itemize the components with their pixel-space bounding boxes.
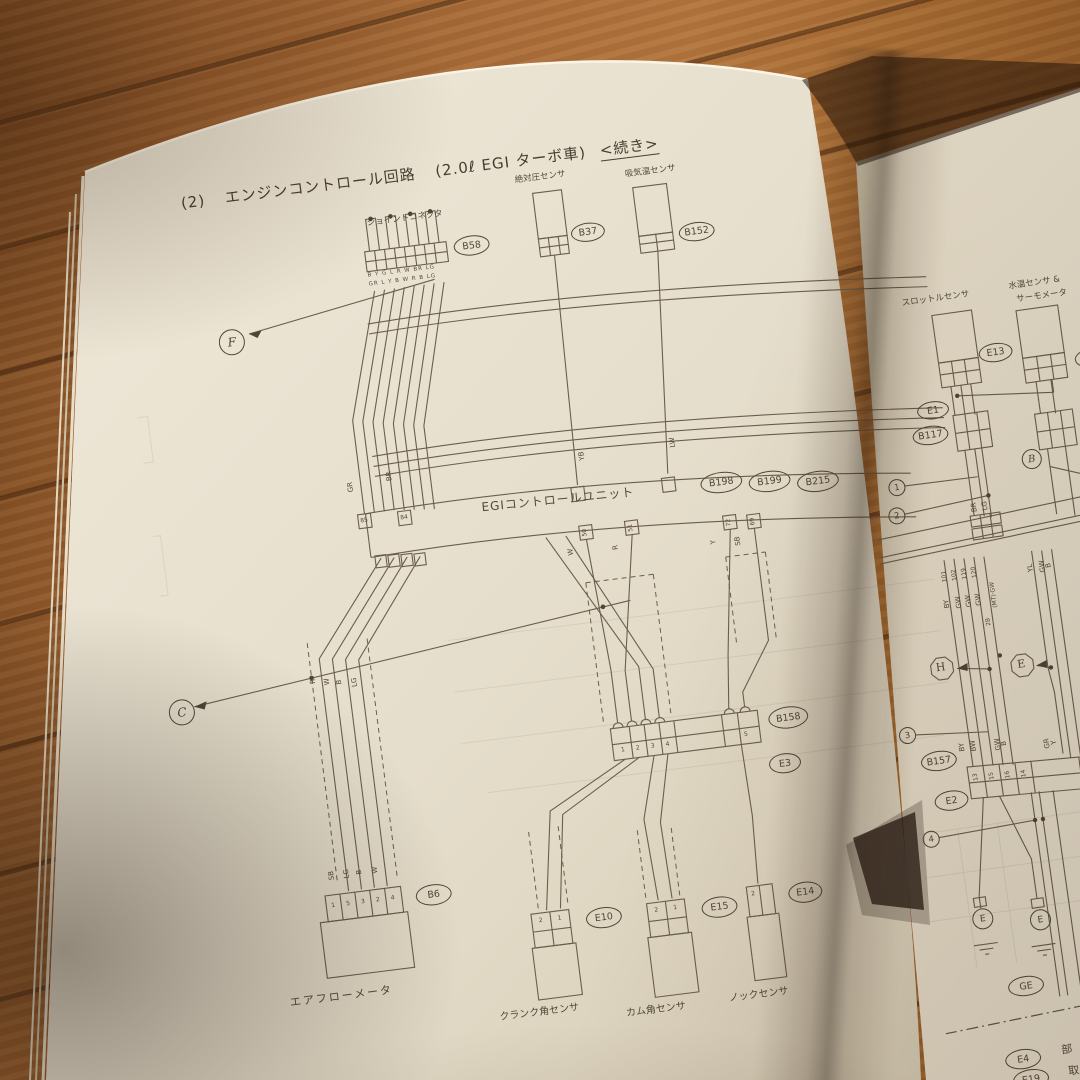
wire-af-2: LG — [343, 869, 351, 879]
ground-octagon-e: E — [1016, 658, 1026, 671]
wire-af-4: W — [372, 866, 380, 874]
wire-b: B — [1045, 562, 1053, 568]
bleedthrough-lines — [108, 272, 977, 1016]
wire-br: BR — [386, 471, 394, 482]
b158-pin-4: 4 — [665, 742, 670, 749]
wire-bundle-4: LG — [351, 677, 359, 687]
b6-pin-2: 5 — [346, 901, 351, 908]
pin-84: 84 — [400, 515, 408, 522]
arrowheads — [149, 330, 308, 710]
wire-bw: BW — [969, 739, 978, 751]
b6-pin-4: 2 — [376, 897, 381, 904]
wire-lw: LW — [669, 437, 678, 448]
pin-51: 51 — [628, 524, 635, 532]
wire-bundle-2: W — [324, 678, 332, 686]
wire-af-3: B — [356, 869, 364, 875]
b6-pin-1: 1 — [331, 903, 336, 910]
wire-bundle-3: B — [336, 679, 344, 685]
wire-2b: 2B — [985, 617, 992, 626]
b158-pin-2: 2 — [636, 745, 641, 752]
pin-85: 85 — [360, 518, 368, 525]
wire-gw3: GW — [974, 593, 983, 606]
pin-72: 72 — [726, 518, 733, 526]
wire-br-r: BR — [970, 502, 979, 513]
wire-r: R — [612, 544, 620, 550]
pin-50: 50 — [582, 528, 589, 536]
pin-15: 15 — [989, 772, 996, 780]
pin-13: 13 — [973, 773, 980, 781]
b158-pin-3: 3 — [651, 743, 656, 750]
partial-kanji-2: 取 — [1068, 1064, 1080, 1077]
b158-pin-5: 5 — [744, 732, 749, 739]
bleedthrough-lines-right — [918, 803, 1080, 974]
wire-gw1: GW — [955, 596, 964, 609]
e15-pin-a: 2 — [654, 907, 659, 914]
e14-pin: 2 — [751, 891, 756, 898]
wire-sb: SB — [734, 536, 742, 546]
wire-by: BY — [943, 599, 951, 609]
pin-16: 16 — [1005, 770, 1012, 778]
b6-pin-3: 3 — [361, 899, 366, 906]
e10-pin-b: 1 — [557, 915, 562, 922]
wire-yl: YL — [1027, 563, 1035, 572]
e15-pin-b: 1 — [673, 905, 678, 912]
wire-bundle-1: R — [310, 678, 318, 684]
wire-af-1: SB — [328, 870, 336, 880]
photo-of-wiring-manual: (2)エンジンコントロール回路(2.0ℓ EGI ターボ車)<続き> — [0, 0, 1080, 1080]
e10-pin-a: 2 — [539, 918, 544, 925]
wire-gw2: GW — [965, 594, 974, 607]
wire-yb: YB — [578, 451, 586, 461]
wire-by2: BY — [958, 742, 966, 752]
partial-kanji-1: 部 — [1061, 1043, 1074, 1056]
wire-b2: B — [1001, 740, 1009, 746]
b6-pin-5: 4 — [391, 895, 396, 902]
wire-w: W — [567, 548, 575, 556]
b158-pin-1: 1 — [621, 747, 626, 754]
wire-y: Y — [710, 539, 718, 544]
ground-octagon-h: H — [935, 661, 946, 674]
shield-dashed-lines — [303, 552, 807, 942]
pin-69: 69 — [750, 517, 757, 525]
pin-14: 14 — [1021, 769, 1028, 777]
wire-gr: GR — [347, 482, 356, 493]
wire-lg-r: LG — [981, 500, 990, 510]
